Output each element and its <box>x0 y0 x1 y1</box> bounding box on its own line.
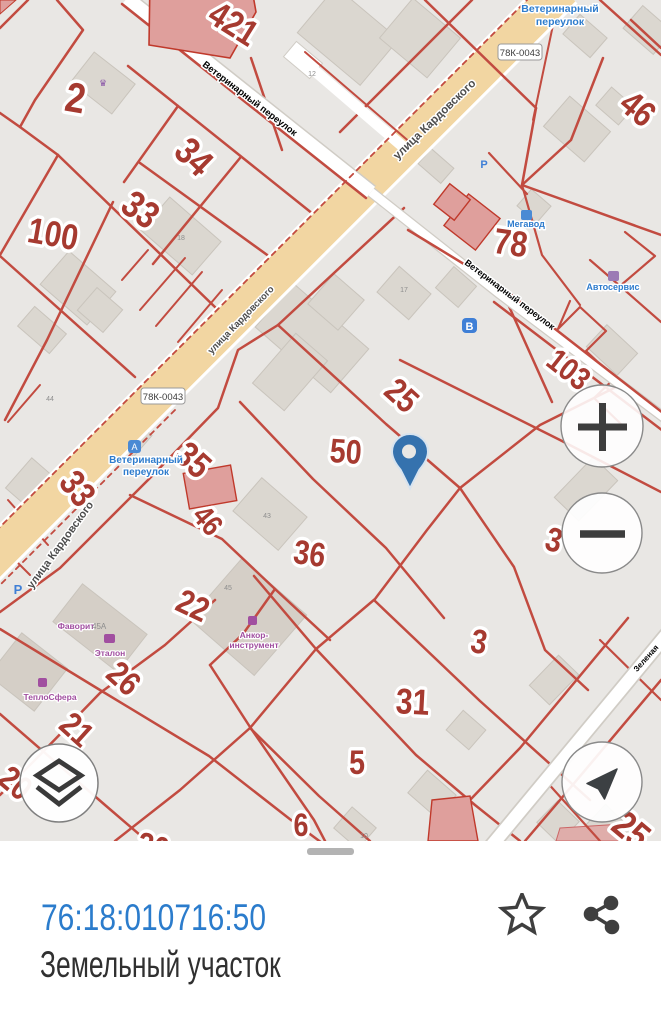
svg-text:78К-0043: 78К-0043 <box>143 392 183 403</box>
svg-text:44: 44 <box>46 396 54 403</box>
svg-text:Ветеринарный: Ветеринарный <box>521 3 599 15</box>
svg-text:6: 6 <box>294 808 309 841</box>
svg-text:45: 45 <box>224 585 232 592</box>
svg-text:78К-0043: 78К-0043 <box>500 48 540 59</box>
svg-text:50: 50 <box>329 432 363 472</box>
svg-text:36: 36 <box>291 533 328 575</box>
svg-text:10: 10 <box>360 833 368 840</box>
svg-text:Р: Р <box>14 582 23 597</box>
svg-text:Р: Р <box>480 159 487 171</box>
svg-text:♛: ♛ <box>99 78 107 88</box>
svg-text:Мегавод: Мегавод <box>507 219 545 229</box>
svg-text:Эталон: Эталон <box>95 648 126 658</box>
svg-text:18: 18 <box>177 235 185 242</box>
svg-text:инструмент: инструмент <box>229 640 278 650</box>
svg-text:12: 12 <box>308 71 316 78</box>
svg-text:Фаворит: Фаворит <box>58 621 95 631</box>
svg-text:31: 31 <box>395 682 431 724</box>
svg-text:43: 43 <box>263 513 271 520</box>
svg-text:Автосервис: Автосервис <box>586 282 639 292</box>
svg-text:переулок: переулок <box>536 16 585 28</box>
svg-text:В: В <box>466 321 474 333</box>
svg-text:45А: 45А <box>92 622 107 631</box>
svg-text:17: 17 <box>400 287 408 294</box>
svg-text:Ветеринарный: Ветеринарный <box>109 455 183 466</box>
svg-text:ТеплоСфера: ТеплоСфера <box>23 692 76 702</box>
svg-text:Анкор-: Анкор- <box>240 630 269 640</box>
svg-text:переулок: переулок <box>123 467 170 478</box>
svg-text:A: A <box>131 442 137 452</box>
svg-text:5: 5 <box>349 744 365 782</box>
